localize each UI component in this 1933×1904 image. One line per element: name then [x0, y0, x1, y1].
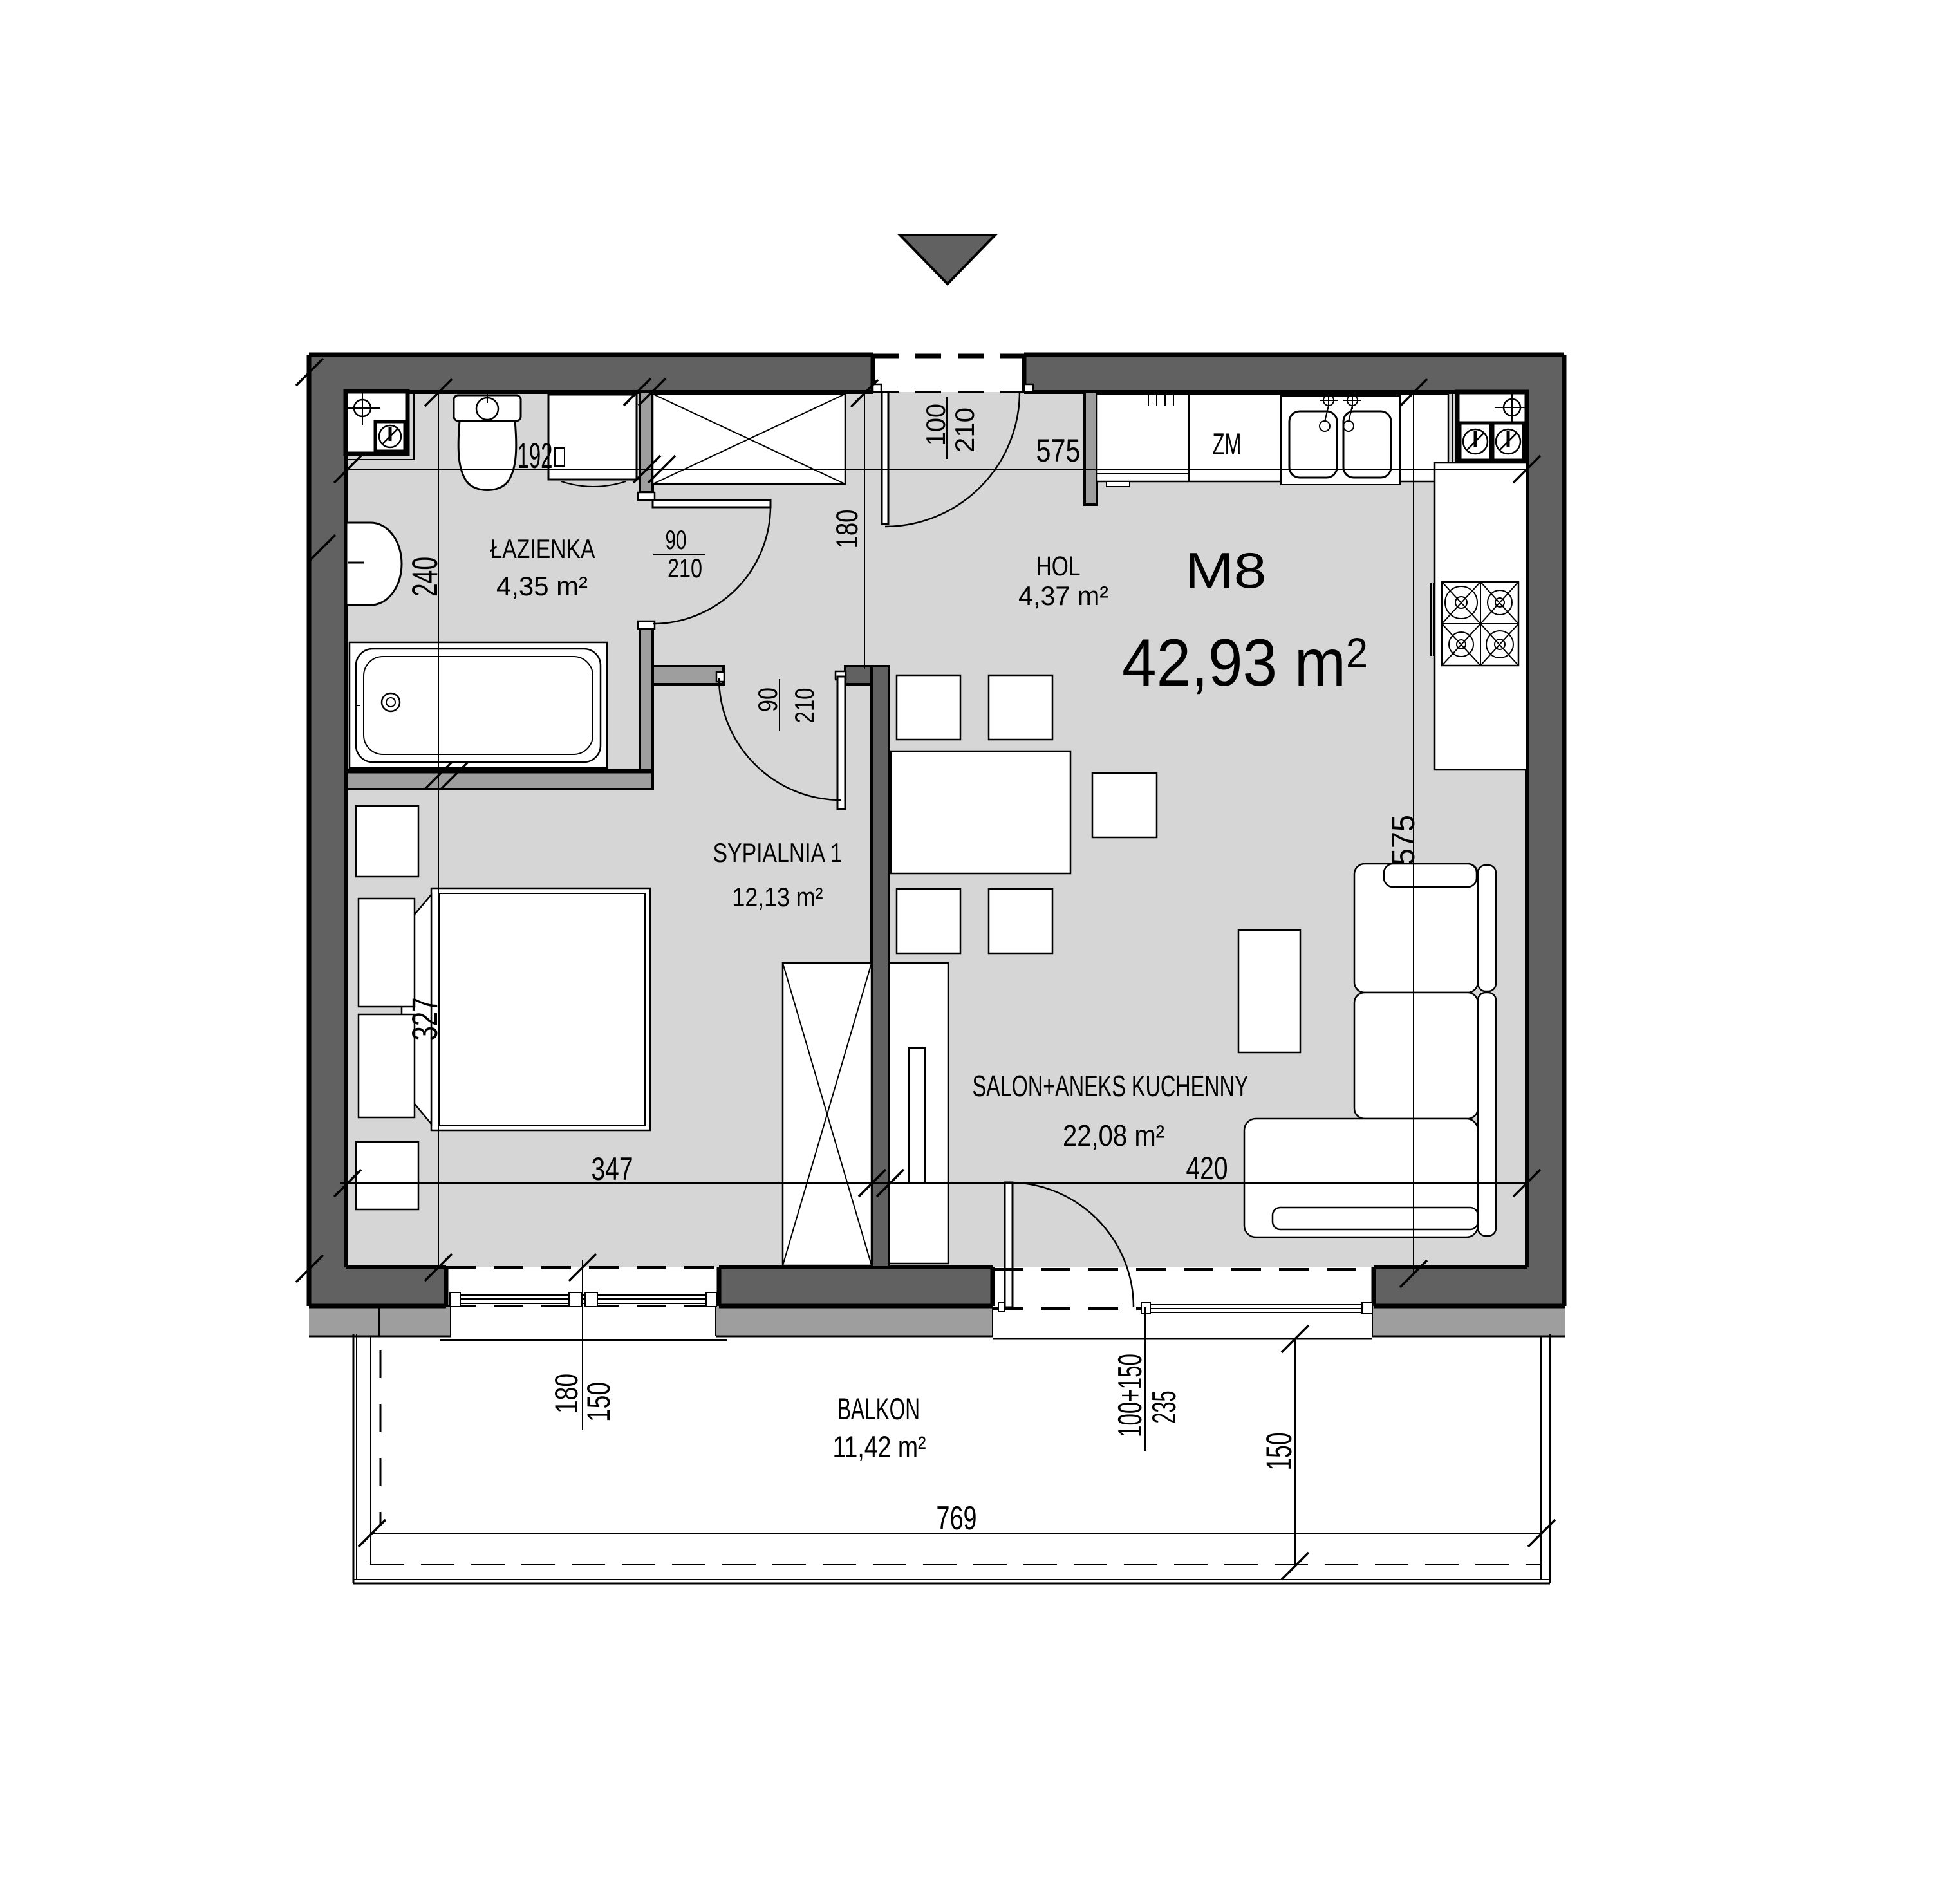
svg-text:ŁAZIENKA: ŁAZIENKA	[490, 534, 595, 564]
svg-text:150: 150	[1258, 1433, 1299, 1471]
svg-text:42,93 m2: 42,93 m2	[1122, 626, 1368, 700]
svg-text:769: 769	[937, 1500, 977, 1537]
svg-text:4,35 m²: 4,35 m²	[496, 571, 588, 601]
svg-text:180: 180	[830, 510, 864, 549]
svg-text:SALON+ANEKS KUCHENNY: SALON+ANEKS KUCHENNY	[973, 1069, 1249, 1103]
svg-text:327: 327	[404, 998, 445, 1041]
svg-text:210: 210	[789, 688, 819, 723]
svg-text:100+150: 100+150	[1112, 1354, 1149, 1437]
svg-text:210: 210	[949, 407, 980, 453]
svg-text:100: 100	[920, 404, 951, 446]
svg-text:22,08 m²: 22,08 m²	[1063, 1119, 1164, 1152]
svg-text:4,37 m²: 4,37 m²	[1018, 581, 1108, 611]
svg-text:ZM: ZM	[1213, 427, 1242, 461]
svg-text:347: 347	[592, 1151, 633, 1187]
svg-text:235: 235	[1146, 1391, 1183, 1424]
svg-text:BALKON: BALKON	[837, 1392, 920, 1426]
svg-text:150: 150	[581, 1382, 617, 1422]
svg-text:SYPIALNIA 1: SYPIALNIA 1	[713, 837, 843, 868]
svg-text:M8: M8	[1185, 542, 1267, 599]
svg-text:575: 575	[1385, 815, 1421, 865]
svg-text:90: 90	[752, 687, 783, 712]
svg-text:HOL: HOL	[1036, 551, 1081, 582]
svg-text:575: 575	[1036, 433, 1081, 469]
svg-text:420: 420	[1186, 1150, 1228, 1186]
svg-text:12,13 m²: 12,13 m²	[733, 882, 823, 912]
svg-text:180: 180	[548, 1374, 584, 1414]
svg-text:210: 210	[668, 553, 702, 583]
svg-text:11,42 m²: 11,42 m²	[833, 1430, 926, 1464]
svg-text:90: 90	[666, 525, 687, 555]
svg-text:240: 240	[404, 557, 445, 597]
svg-text:192: 192	[518, 435, 553, 476]
